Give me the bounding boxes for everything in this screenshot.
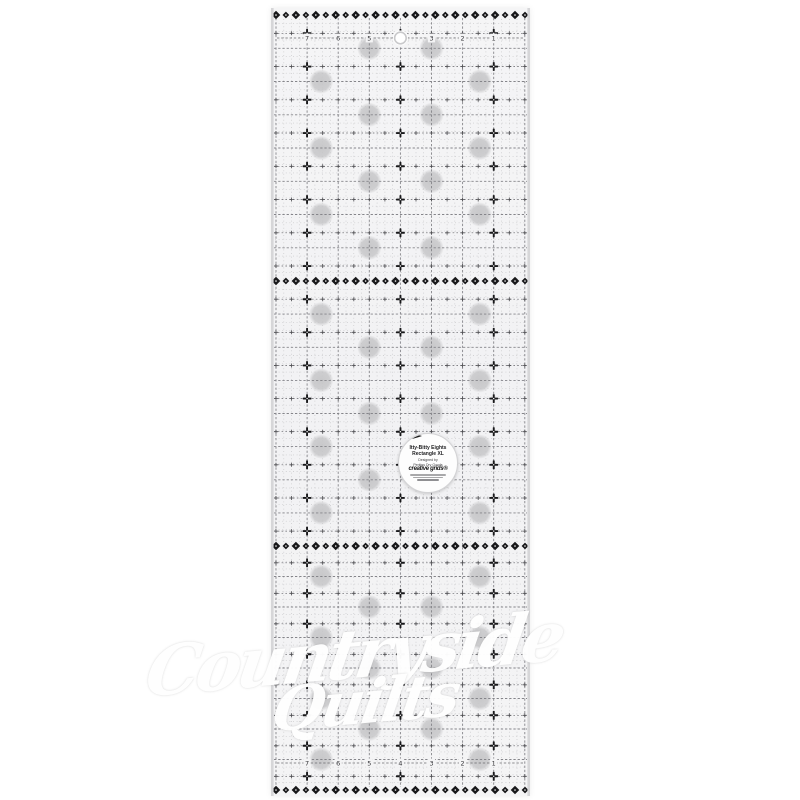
ruler-number: 7 bbox=[305, 34, 309, 42]
hanging-hole bbox=[393, 31, 408, 46]
plus-marker bbox=[489, 711, 498, 720]
plus-marker bbox=[396, 295, 405, 304]
ruler-number: 2 bbox=[461, 34, 465, 42]
plus-marker bbox=[303, 394, 312, 403]
plus-marker bbox=[396, 62, 405, 71]
label-brand-name: creative grids® bbox=[409, 466, 448, 473]
plus-marker bbox=[489, 228, 498, 237]
ruler-number: 2 bbox=[461, 759, 465, 767]
plus-marker bbox=[303, 711, 312, 720]
plus-marker bbox=[396, 262, 405, 271]
ruler-number: 5 bbox=[367, 34, 371, 42]
plus-marker bbox=[396, 129, 405, 138]
ruler-number: 3 bbox=[429, 759, 433, 767]
plus-marker bbox=[489, 262, 498, 271]
ruler-number: 5 bbox=[367, 759, 371, 767]
plus-marker bbox=[489, 162, 498, 171]
plus-marker bbox=[396, 558, 405, 567]
plus-marker bbox=[303, 195, 312, 204]
plus-marker bbox=[489, 295, 498, 304]
plus-marker bbox=[396, 711, 405, 720]
plus-marker bbox=[303, 650, 312, 659]
brand-swoosh-icon bbox=[399, 434, 423, 442]
plus-marker bbox=[489, 361, 498, 370]
plus-marker bbox=[489, 460, 498, 469]
plus-marker bbox=[489, 680, 498, 689]
plus-marker bbox=[396, 619, 405, 628]
plus-marker bbox=[396, 328, 405, 337]
plus-marker bbox=[396, 361, 405, 370]
plus-marker bbox=[489, 394, 498, 403]
ruler-number: 6 bbox=[336, 34, 340, 42]
ruler-number: 6 bbox=[336, 759, 340, 767]
plus-marker bbox=[303, 361, 312, 370]
ruler-grid-artwork: 76543217654321 bbox=[271, 8, 530, 796]
plus-marker bbox=[396, 741, 405, 750]
plus-marker bbox=[303, 162, 312, 171]
brand-label-seal: Itty-Bitty Eights Rectangle XL Designed … bbox=[398, 433, 458, 493]
ruler-number: 1 bbox=[492, 759, 496, 767]
ruler-number: 7 bbox=[305, 759, 309, 767]
plus-marker bbox=[489, 558, 498, 567]
plus-marker bbox=[303, 619, 312, 628]
plus-marker bbox=[303, 494, 312, 503]
plus-marker bbox=[396, 394, 405, 403]
plus-marker bbox=[396, 527, 405, 536]
quilt-ruler: 76543217654321 Itty-Bitty Eights Rectang… bbox=[271, 8, 530, 796]
label-fineprint-line bbox=[413, 477, 443, 479]
plus-marker bbox=[396, 228, 405, 237]
plus-marker bbox=[303, 295, 312, 304]
plus-marker bbox=[489, 195, 498, 204]
ruler-right-edge bbox=[527, 8, 530, 796]
plus-marker bbox=[396, 680, 405, 689]
plus-marker bbox=[489, 527, 498, 536]
plus-marker bbox=[396, 195, 405, 204]
plus-marker bbox=[489, 650, 498, 659]
label-fineprint-line bbox=[417, 479, 439, 481]
plus-marker bbox=[303, 680, 312, 689]
plus-marker bbox=[489, 589, 498, 598]
plus-marker bbox=[489, 95, 498, 104]
plus-marker bbox=[303, 95, 312, 104]
plus-marker bbox=[489, 494, 498, 503]
plus-marker bbox=[489, 427, 498, 436]
plus-marker bbox=[489, 62, 498, 71]
plus-marker bbox=[396, 494, 405, 503]
plus-marker bbox=[303, 741, 312, 750]
product-photo-quilting-ruler: 76543217654321 Itty-Bitty Eights Rectang… bbox=[0, 0, 800, 800]
plus-marker bbox=[396, 772, 405, 781]
plus-marker bbox=[303, 772, 312, 781]
plus-marker bbox=[303, 558, 312, 567]
ruler-number: 4 bbox=[398, 759, 402, 767]
ruler-number: 1 bbox=[492, 34, 496, 42]
plus-marker bbox=[303, 262, 312, 271]
ruler-number: 3 bbox=[429, 34, 433, 42]
plus-marker bbox=[396, 650, 405, 659]
plus-marker bbox=[303, 62, 312, 71]
plus-marker bbox=[303, 460, 312, 469]
plus-marker bbox=[303, 427, 312, 436]
label-fineprint-line bbox=[410, 474, 446, 476]
plus-marker bbox=[489, 129, 498, 138]
plus-marker bbox=[303, 527, 312, 536]
plus-marker bbox=[303, 228, 312, 237]
plus-marker bbox=[489, 328, 498, 337]
ruler-left-edge bbox=[271, 8, 274, 796]
plus-marker bbox=[489, 772, 498, 781]
plus-marker bbox=[396, 589, 405, 598]
plus-marker bbox=[396, 162, 405, 171]
plus-marker bbox=[396, 95, 405, 104]
plus-marker bbox=[489, 741, 498, 750]
plus-marker bbox=[303, 129, 312, 138]
plus-marker bbox=[489, 619, 498, 628]
plus-marker bbox=[303, 589, 312, 598]
plus-marker bbox=[303, 328, 312, 337]
label-product-name-line2: Rectangle XL bbox=[412, 451, 444, 457]
